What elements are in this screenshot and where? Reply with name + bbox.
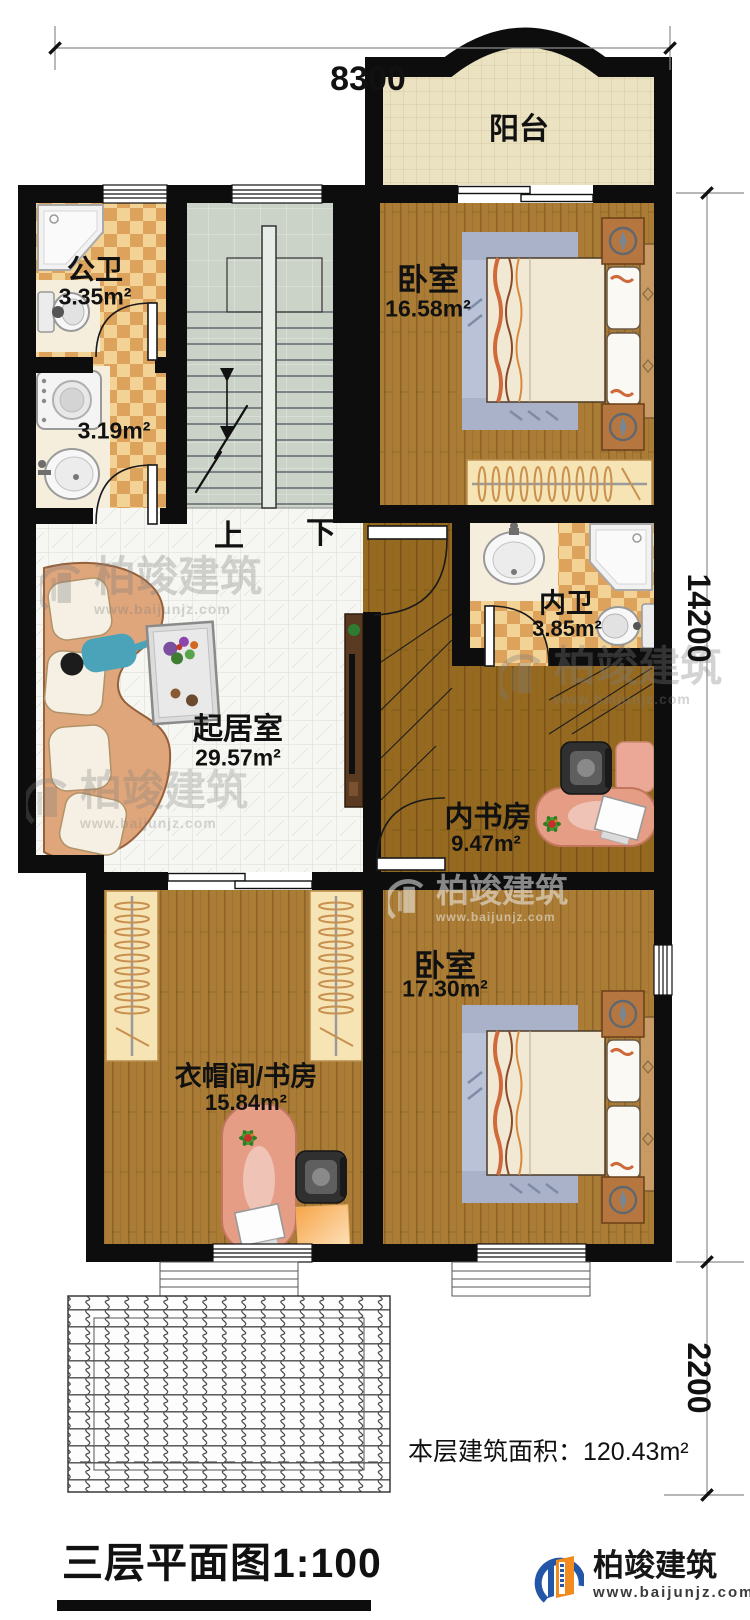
room-area-laundry: 3.19m²: [78, 420, 151, 443]
title-underline: [57, 1600, 371, 1611]
room-label-bedroom-top: 卧室: [397, 265, 459, 296]
toilet: [597, 604, 656, 648]
stairwell-floor: [187, 203, 333, 508]
room-area-cloakroom: 15.84m²: [205, 1092, 287, 1114]
bed: [462, 218, 656, 450]
room-label-living: 起居室: [193, 715, 283, 745]
room-label-inner-study: 内书房: [444, 804, 531, 833]
brand-url: www.baijunjz.com: [593, 1584, 750, 1601]
dim-right-height: 14200: [683, 574, 715, 663]
sliding-door: [458, 185, 593, 203]
room-label-inner-bath: 内卫: [539, 591, 593, 618]
room-label-balcony: 阳台: [489, 115, 549, 145]
tv-console: [345, 614, 363, 807]
room-area-bedroom-top: 16.58m²: [385, 298, 471, 321]
floor-plan-page: 柏竣建筑 www.baijunjz.com 柏竣建筑 www.baijunjz.…: [0, 0, 750, 1620]
stairs-up-label: 上: [214, 522, 244, 552]
room-area-living: 29.57m²: [195, 747, 281, 770]
sliding-door: [168, 872, 312, 890]
dim-top-width: 8300: [330, 62, 406, 96]
room-label-public-bath: 公卫: [67, 256, 123, 284]
room-area-inner-study: 9.47m²: [451, 833, 521, 855]
brand-logo-icon: [534, 1550, 584, 1604]
room-label-cloakroom: 衣帽间/书房: [175, 1064, 318, 1091]
page-title: 三层平面图1:100: [62, 1543, 382, 1584]
room-area-bedroom-bottom: 17.30m²: [402, 978, 488, 1001]
stairs-down-label: 下: [306, 519, 336, 549]
coffee-table: [147, 622, 220, 724]
room-area-inner-bath: 3.85m²: [532, 618, 602, 640]
closet: [467, 460, 652, 508]
floor-plan-drawing: [0, 0, 750, 1620]
closet: [310, 891, 362, 1061]
brand-name: 柏竣建筑: [593, 1550, 750, 1581]
dim-porch-depth: 2200: [683, 1342, 715, 1413]
lower-roof: [68, 1296, 390, 1492]
room-area-public-bath: 3.35m²: [59, 286, 132, 309]
closet: [106, 891, 158, 1061]
total-area-text: 本层建筑面积：120.43m²: [408, 1440, 689, 1465]
entry-steps: [160, 1262, 590, 1296]
brand-logo: 柏竣建筑 www.baijunjz.com: [534, 1550, 750, 1604]
bed: [462, 991, 656, 1223]
